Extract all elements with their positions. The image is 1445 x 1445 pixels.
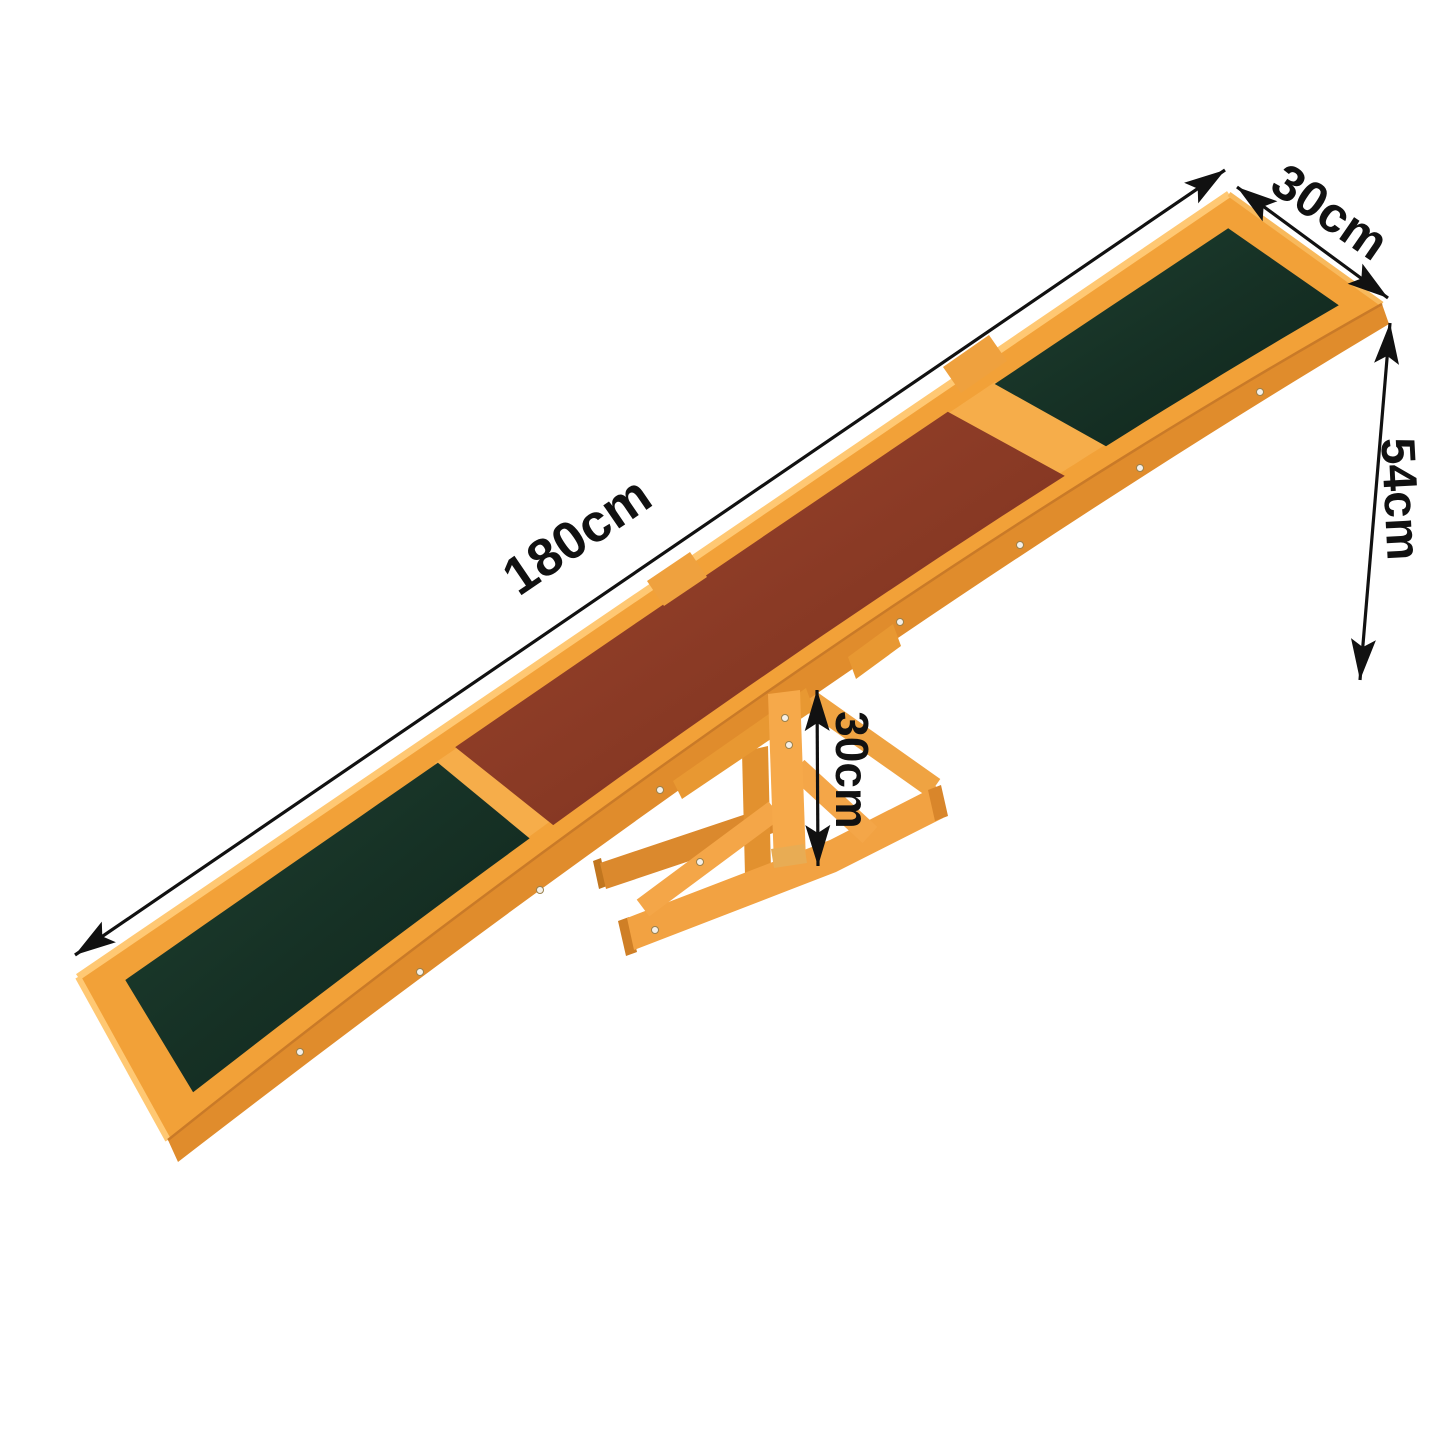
svg-text:54cm: 54cm: [1370, 436, 1429, 561]
svg-text:30cm: 30cm: [826, 711, 878, 829]
